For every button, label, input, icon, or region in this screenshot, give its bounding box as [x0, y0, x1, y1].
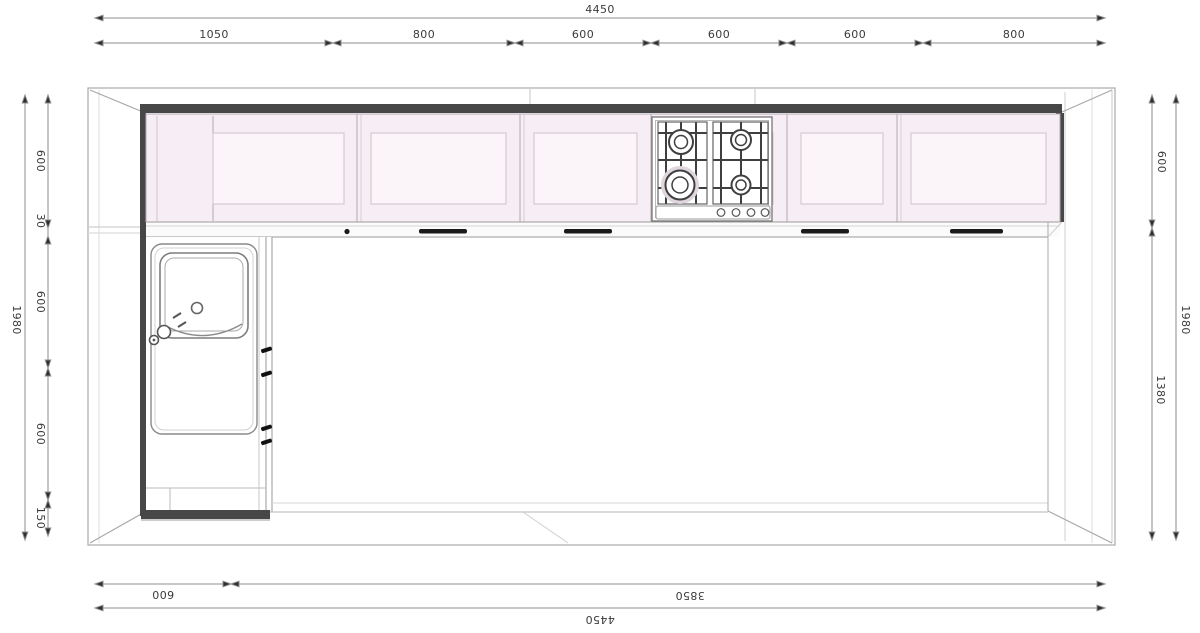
- cabinet-door-frames: [213, 133, 1046, 204]
- knob-icon: [747, 209, 755, 217]
- dim-top-segment-1-label: 800: [402, 28, 446, 42]
- door-knob: [344, 229, 349, 234]
- dim-left-segment-0-label: 600: [33, 139, 47, 183]
- upper-cabinet-run: [146, 114, 1060, 222]
- door-handle: [801, 229, 849, 234]
- floor-edges: [141, 222, 1062, 543]
- dim-top-overall-label: 4450: [578, 3, 622, 17]
- kitchen-plan-canvas: 4450 1050 800 600 600 600 800 600 3850 4…: [0, 0, 1200, 633]
- door-handle: [419, 229, 467, 234]
- dim-top-segment-0-label: 1050: [192, 28, 236, 42]
- dim-bottom-overall-label: 4450: [578, 612, 622, 626]
- door-handle: [950, 229, 1003, 234]
- knob-icon: [732, 209, 740, 217]
- dim-bottom-segment-1-label: 3850: [668, 588, 712, 602]
- knob-icon: [717, 209, 725, 217]
- dim-right-segment-0-label: 600: [1154, 140, 1168, 184]
- dim-top-segment-5-label: 800: [992, 28, 1036, 42]
- sink-with-drainer-icon: [150, 244, 258, 434]
- drain-icon: [192, 303, 203, 314]
- dim-top-segment-3-label: 600: [697, 28, 741, 42]
- dim-top-segment-2-label: 600: [561, 28, 605, 42]
- dim-left-segment-4-label: 150: [33, 496, 47, 540]
- top-wall-edge: [143, 104, 1062, 113]
- hob-knob-strip: [656, 206, 770, 219]
- dim-left-overall-label: 1980: [9, 298, 23, 342]
- dim-lines-bottom: [95, 581, 1105, 611]
- dim-top-segment-4-label: 600: [833, 28, 877, 42]
- dim-left-segment-3-label: 600: [33, 412, 47, 456]
- door-handle: [564, 229, 612, 234]
- dim-bottom-segment-0-label: 600: [141, 587, 185, 601]
- dim-left-segment-2-label: 600: [33, 280, 47, 324]
- counter-front-edge: [141, 510, 270, 519]
- left-wall-edge: [140, 104, 146, 516]
- dim-left-segment-1-label: 30: [33, 199, 47, 243]
- plan-drawing: [0, 0, 1200, 633]
- dim-right-segment-1-label: 1380: [1153, 368, 1167, 412]
- sink-basin: [160, 253, 248, 338]
- knob-icon: [761, 209, 769, 217]
- dim-right-overall-label: 1980: [1178, 298, 1192, 342]
- gas-hob-icon: [652, 117, 772, 221]
